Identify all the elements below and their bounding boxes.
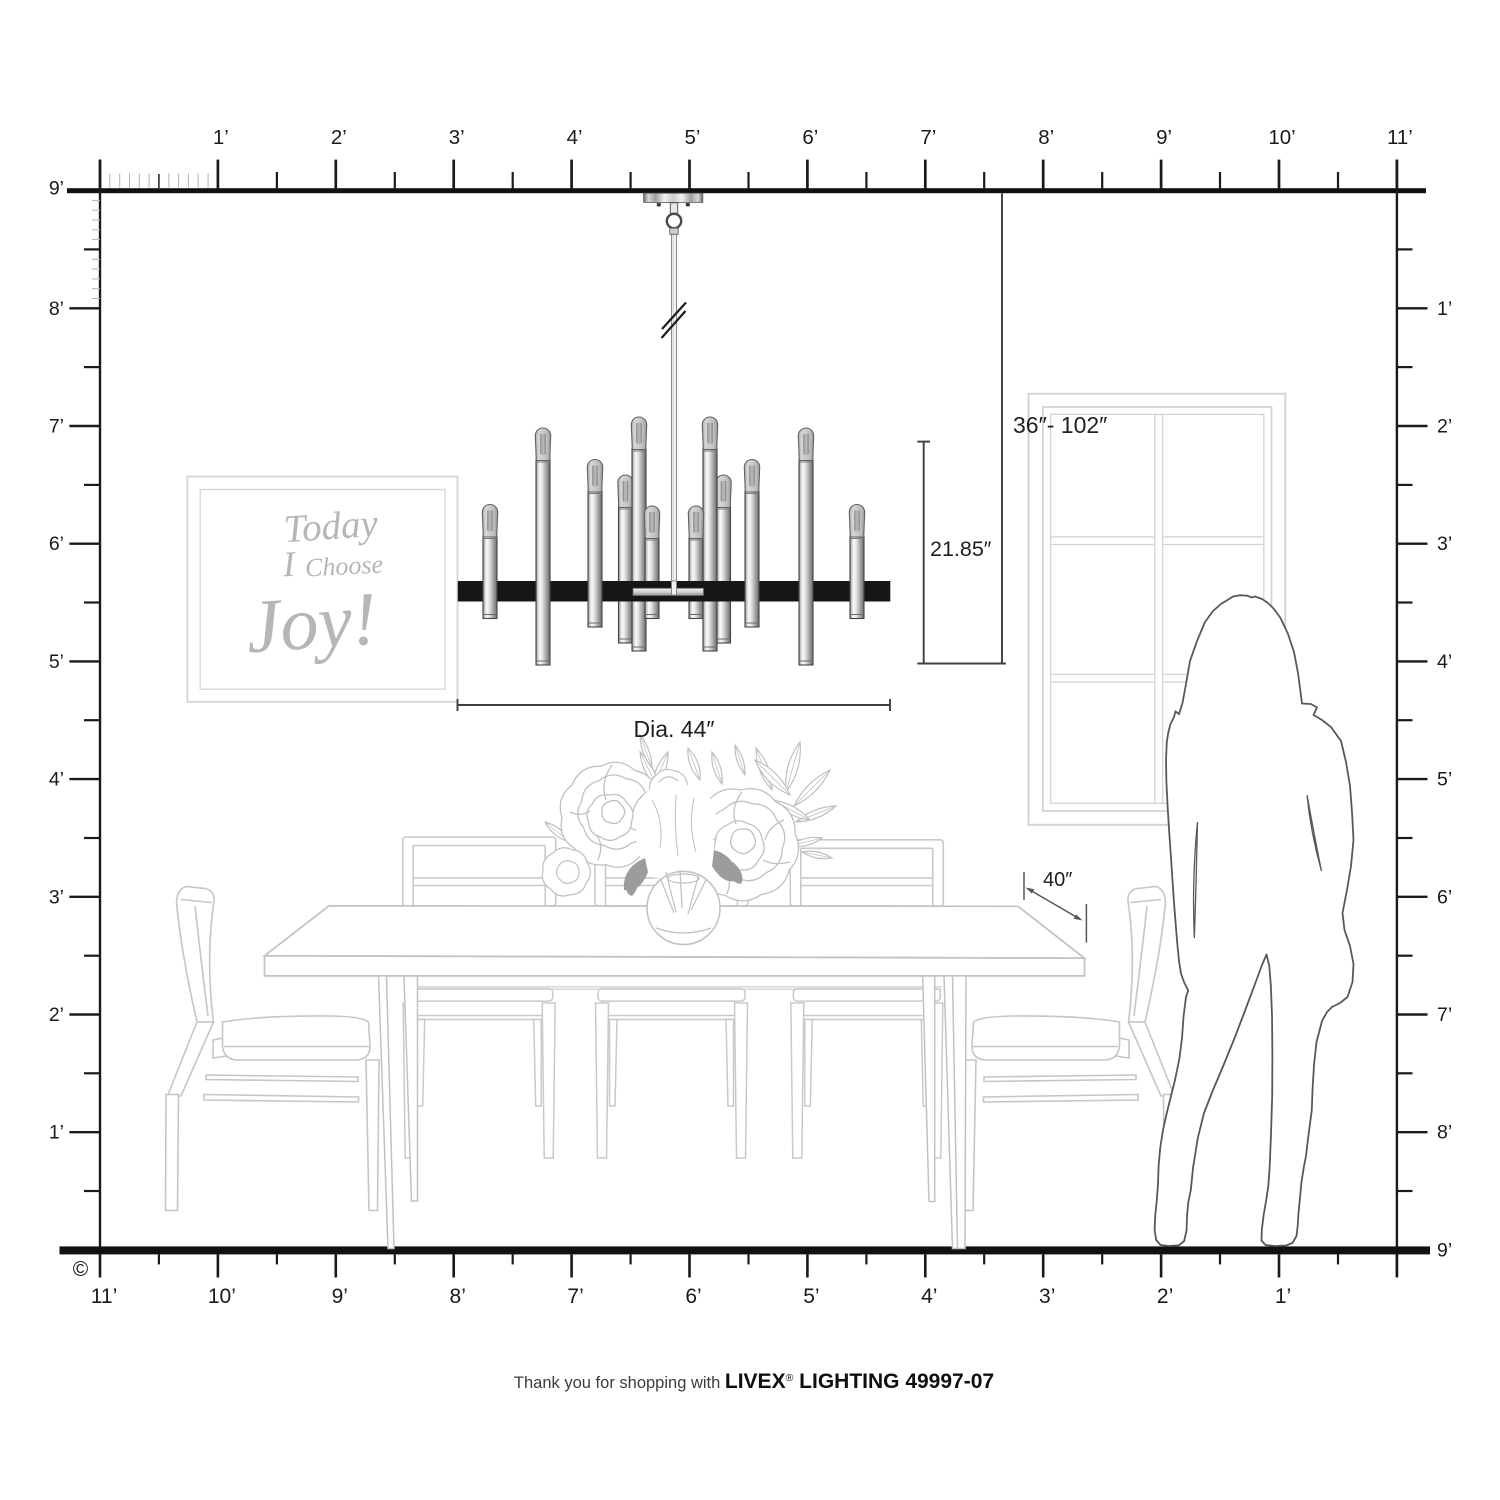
svg-text:4’: 4’ [567, 126, 583, 149]
svg-text:3’: 3’ [49, 886, 64, 908]
svg-text:7’: 7’ [49, 416, 64, 438]
svg-text:3’: 3’ [449, 126, 465, 149]
svg-text:Today: Today [282, 502, 379, 551]
svg-text:9’: 9’ [49, 178, 64, 200]
svg-text:Joy!: Joy! [243, 577, 379, 670]
svg-text:9’: 9’ [1437, 1239, 1452, 1261]
svg-text:1’: 1’ [213, 126, 229, 149]
svg-text:7’: 7’ [567, 1285, 583, 1308]
svg-text:6’: 6’ [1437, 886, 1452, 908]
svg-text:8’: 8’ [450, 1285, 466, 1308]
svg-text:2’: 2’ [49, 1004, 64, 1026]
svg-text:21.85″: 21.85″ [930, 537, 992, 561]
svg-text:5’: 5’ [685, 126, 701, 149]
svg-text:6’: 6’ [685, 1285, 701, 1308]
svg-text:4’: 4’ [49, 769, 64, 791]
svg-text:6’: 6’ [49, 533, 64, 555]
svg-text:11’: 11’ [1387, 126, 1413, 149]
svg-text:7’: 7’ [920, 126, 936, 149]
svg-text:1’: 1’ [1275, 1285, 1291, 1308]
svg-text:2’: 2’ [1437, 416, 1452, 438]
svg-text:7’: 7’ [1437, 1004, 1452, 1026]
svg-text:4’: 4’ [1437, 651, 1452, 673]
svg-text:4’: 4’ [921, 1285, 937, 1308]
svg-text:3’: 3’ [1039, 1285, 1055, 1308]
svg-text:©: © [73, 1258, 89, 1281]
svg-text:8’: 8’ [1437, 1122, 1452, 1144]
svg-text:40″: 40″ [1043, 869, 1072, 891]
svg-text:2’: 2’ [331, 126, 347, 149]
svg-text:Thank you for shopping with LI: Thank you for shopping with LIVEX® LIGHT… [514, 1370, 994, 1393]
svg-text:36″- 102″: 36″- 102″ [1013, 412, 1107, 438]
svg-text:8’: 8’ [1038, 126, 1054, 149]
svg-text:5’: 5’ [803, 1285, 819, 1308]
svg-text:9’: 9’ [332, 1285, 348, 1308]
svg-text:Dia. 44″: Dia. 44″ [633, 716, 714, 742]
svg-text:1’: 1’ [1437, 298, 1452, 320]
svg-text:1’: 1’ [49, 1122, 64, 1144]
svg-text:10’: 10’ [1268, 126, 1295, 149]
svg-text:10’: 10’ [208, 1285, 236, 1308]
svg-text:8’: 8’ [49, 298, 64, 320]
svg-text:5’: 5’ [1437, 769, 1452, 791]
svg-text:11’: 11’ [91, 1285, 117, 1308]
svg-text:6’: 6’ [802, 126, 818, 149]
svg-text:5’: 5’ [49, 651, 64, 673]
svg-text:2’: 2’ [1157, 1285, 1173, 1308]
svg-text:9’: 9’ [1156, 126, 1172, 149]
svg-text:3’: 3’ [1437, 533, 1452, 555]
